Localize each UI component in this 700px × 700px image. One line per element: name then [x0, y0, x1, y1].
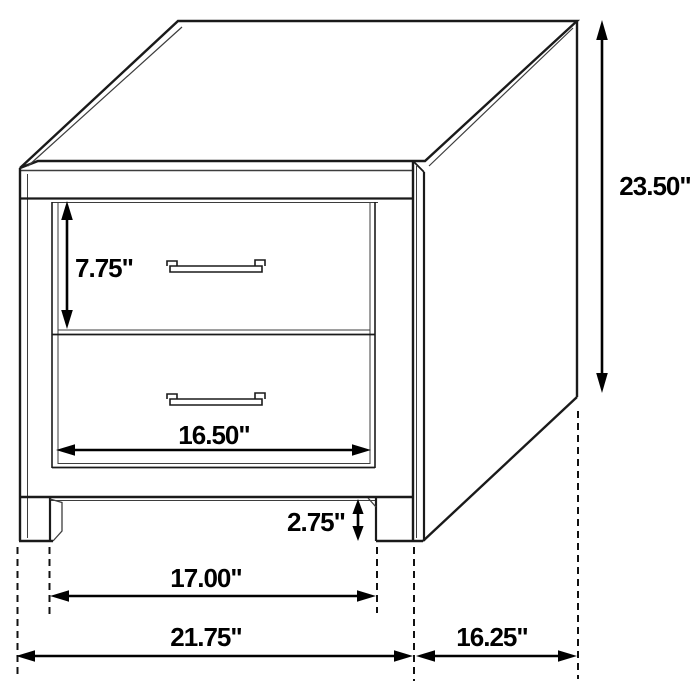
right-leg — [368, 497, 423, 541]
side-panel-bottom-edge — [423, 397, 577, 541]
arrow-up-icon — [61, 201, 73, 220]
arrow-left-icon — [16, 650, 35, 662]
right-leg-corner-bracket — [368, 498, 376, 507]
arrow-left-icon — [56, 444, 75, 456]
drawer1-handle-right-cap — [255, 260, 265, 266]
arrow-right-icon — [558, 650, 577, 662]
dimension-label-drawer-height: 7.75" — [75, 253, 133, 283]
drawer1-handle — [167, 260, 265, 272]
dimension-base-clearance: 2.75" — [287, 499, 364, 541]
dimension-label-overall-width: 21.75" — [170, 622, 241, 652]
dimension-overall-width: 21.75" — [16, 622, 413, 662]
dimension-overall-height: 23.50" — [596, 20, 690, 393]
dimension-label-drawer-width: 16.50" — [178, 420, 249, 450]
arrow-left-icon — [416, 650, 435, 662]
dimension-label-leg-span: 17.00" — [170, 563, 241, 593]
dimension-label-overall-height: 23.50" — [619, 171, 690, 201]
dimension-overall-depth: 16.25" — [416, 622, 577, 662]
left-leg-side-face — [50, 499, 62, 541]
dimension-drawer-width: 16.50" — [56, 420, 371, 456]
arrow-left-icon — [50, 590, 69, 602]
arrow-right-icon — [352, 444, 371, 456]
dimension-label-overall-depth: 16.25" — [456, 622, 527, 652]
top-left-edge-inner-line — [28, 27, 182, 166]
cabinet-top-face — [20, 21, 577, 168]
drawer1-handle-bar — [170, 266, 262, 272]
top-right-edge-inner-line — [429, 28, 573, 166]
drawer2-handle — [167, 393, 265, 405]
arrow-down-icon — [61, 310, 73, 329]
furniture-dimension-diagram: 23.50" 7.75" 16.50" 2.75" 17.00" 21.75" — [0, 0, 700, 700]
left-leg — [19, 497, 62, 541]
dimension-drawer-height: 7.75" — [61, 201, 133, 329]
arrow-right-icon — [394, 650, 413, 662]
front-right-corner-chamfer — [413, 161, 424, 172]
diagram-page: 23.50" 7.75" 16.50" 2.75" 17.00" 21.75" — [0, 0, 700, 700]
drawer2-handle-right-cap — [255, 393, 265, 399]
dimension-label-base-clearance: 2.75" — [287, 507, 345, 537]
arrow-right-icon — [357, 590, 376, 602]
drawer2-handle-bar — [170, 399, 262, 405]
arrow-down-icon — [352, 526, 363, 541]
dimension-leg-span: 17.00" — [50, 563, 376, 602]
arrow-up-icon — [352, 499, 363, 514]
arrow-up-icon — [596, 20, 608, 40]
arrow-down-icon — [596, 373, 608, 393]
